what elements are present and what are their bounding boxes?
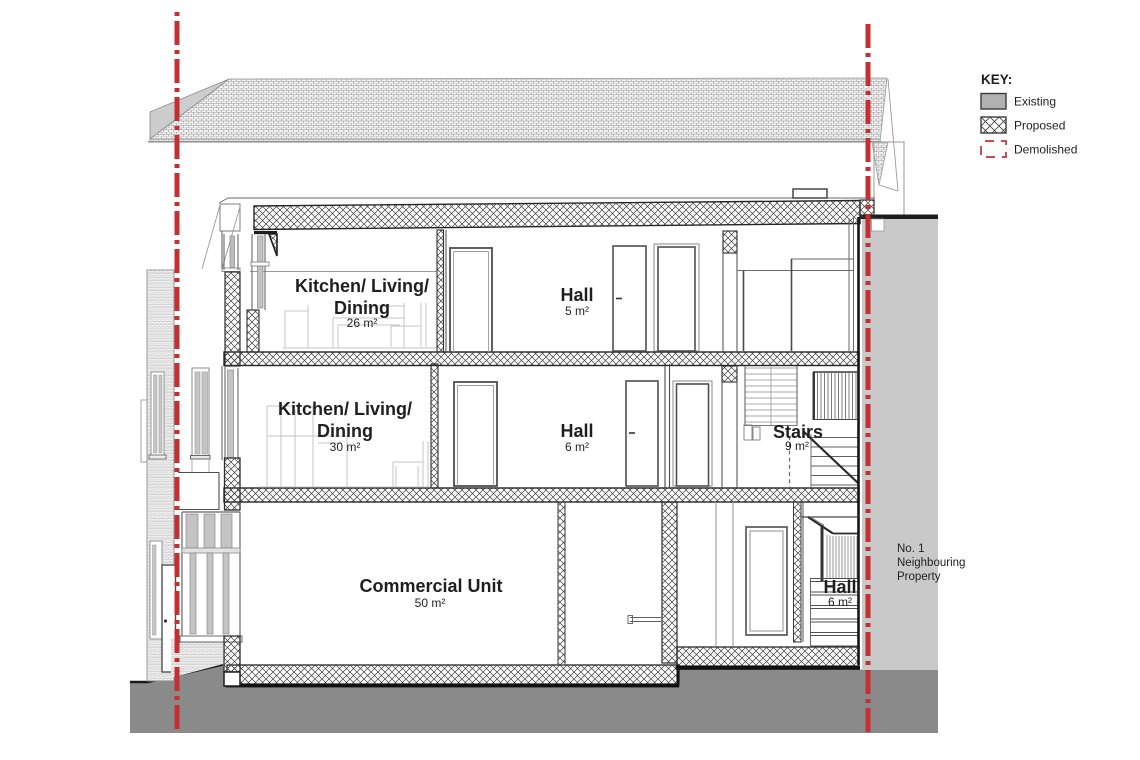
svg-text:Existing: Existing	[1014, 95, 1056, 109]
svg-text:6 m²: 6 m²	[828, 595, 852, 609]
svg-text:Proposed: Proposed	[1014, 119, 1065, 133]
svg-text:No. 1: No. 1	[897, 543, 925, 555]
svg-text:26 m²: 26 m²	[347, 316, 378, 330]
svg-text:Property: Property	[897, 571, 941, 583]
svg-text:Dining: Dining	[334, 298, 390, 318]
svg-text:Dining: Dining	[317, 421, 373, 441]
svg-text:Hall: Hall	[823, 577, 856, 597]
svg-text:Hall: Hall	[560, 421, 593, 441]
svg-text:5 m²: 5 m²	[565, 304, 589, 318]
svg-text:9 m²: 9 m²	[785, 439, 809, 453]
svg-text:Kitchen/ Living/: Kitchen/ Living/	[278, 399, 412, 419]
svg-text:Hall: Hall	[560, 285, 593, 305]
svg-text:KEY:: KEY:	[981, 72, 1012, 87]
svg-text:Kitchen/ Living/: Kitchen/ Living/	[295, 276, 429, 296]
svg-text:6 m²: 6 m²	[565, 440, 589, 454]
svg-text:Neighbouring: Neighbouring	[897, 557, 965, 569]
svg-text:Commercial Unit: Commercial Unit	[359, 576, 502, 596]
svg-text:Demolished: Demolished	[1014, 143, 1077, 157]
svg-text:50 m²: 50 m²	[415, 596, 446, 610]
svg-text:30 m²: 30 m²	[330, 440, 361, 454]
